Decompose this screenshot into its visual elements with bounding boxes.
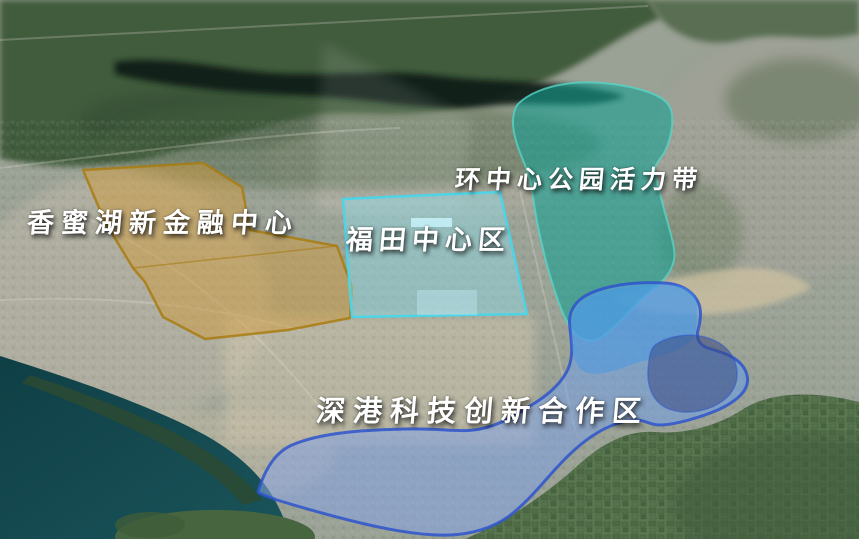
- zone-label-park-belt: 环中心公园活力带: [454, 168, 704, 193]
- satellite-map-view: 香蜜湖新金融中心 福田中心区 环中心公园活力带 深港科技创新合作区: [0, 0, 859, 539]
- zone-hetao-dark-blob: [648, 335, 737, 412]
- zone-label-xiangmihu: 香蜜湖新金融中心: [26, 210, 300, 237]
- zone-label-futian: 福田中心区: [345, 227, 512, 254]
- satellite-basemap: [0, 0, 859, 539]
- zone-label-hetao: 深港科技创新合作区: [315, 398, 651, 427]
- zone-futian-inner-block: [417, 290, 477, 315]
